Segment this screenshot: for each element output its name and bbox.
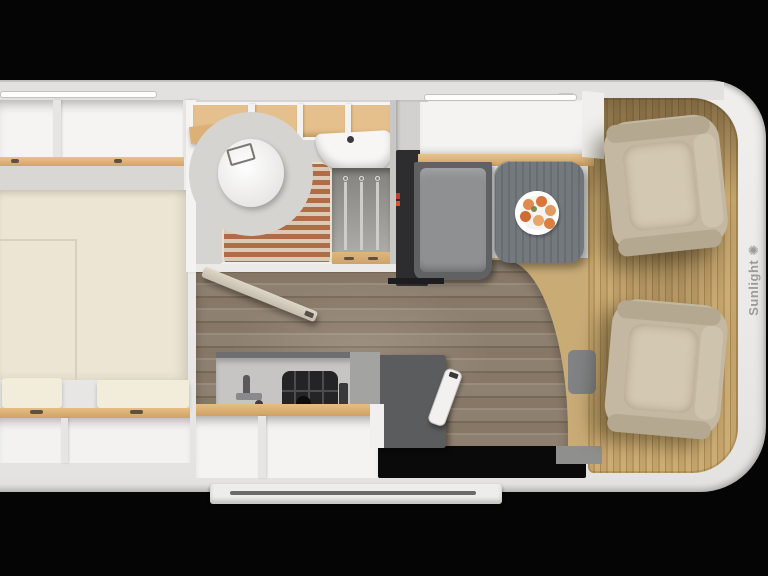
- led-light-strip: [424, 94, 577, 101]
- cab-seat-passenger: [594, 291, 738, 450]
- clothes-hanger: [376, 182, 379, 250]
- fridge-latch-accent: [396, 201, 400, 206]
- hanger-hook: [343, 176, 348, 181]
- floorplan-scene: Sunlight ✺: [0, 0, 768, 576]
- wardrobe-handle: [344, 257, 354, 260]
- locker-divider: [61, 418, 68, 463]
- rear-bed-mattress: [0, 190, 188, 380]
- fruit-leaf: [531, 206, 537, 212]
- locker-handle: [11, 159, 19, 163]
- mattress-seam-horizontal: [0, 239, 76, 241]
- bed-head-shelf: [0, 166, 184, 190]
- locker-handle: [30, 410, 43, 414]
- fruit: [545, 205, 556, 216]
- seat-pedestal: [568, 350, 596, 394]
- overhead-lockers-bottom: [0, 418, 190, 463]
- clothes-hanger: [360, 182, 363, 250]
- side-seat-latch: [449, 371, 459, 379]
- wardrobe-handle: [368, 257, 378, 260]
- entry-side-wall: [370, 404, 384, 448]
- dinette-bench-cushion: [420, 168, 486, 272]
- brand-label: Sunlight ✺: [745, 210, 763, 350]
- entry-threshold: [556, 446, 602, 464]
- hanger-hook: [359, 176, 364, 181]
- hanger-hook: [375, 176, 380, 181]
- locker-divider: [53, 100, 61, 158]
- bed-shelf-sill-bottom: [0, 408, 190, 418]
- locker-handle: [130, 410, 143, 414]
- fruit: [536, 196, 547, 207]
- cab-seat-driver: [593, 106, 740, 267]
- fridge-latch-accent: [396, 193, 400, 199]
- fruit: [544, 218, 555, 229]
- entry-door-opening: [378, 446, 586, 478]
- kitchen-counter-end: [350, 352, 380, 412]
- kitchen-sink-base: [236, 393, 262, 400]
- door-handle: [304, 310, 314, 318]
- sunlight-logo-icon: ✺: [746, 244, 761, 255]
- bathroom-bottom-wall: [196, 264, 397, 272]
- seat-cushion: [622, 139, 701, 232]
- locker-divider: [258, 416, 266, 478]
- entry-step-slot: [230, 491, 476, 495]
- overhead-lockers-top: [0, 100, 188, 158]
- led-light-strip: [0, 91, 157, 98]
- fruit: [520, 211, 531, 222]
- locker-handle: [114, 159, 122, 163]
- bed-backrest-cushion: [2, 378, 62, 408]
- bed-shelf-sill-top: [0, 157, 184, 166]
- kitchen-lockers-sill: [196, 404, 378, 416]
- seat-cushion: [622, 323, 699, 415]
- dinette-overhead-cabinet: [420, 102, 588, 156]
- basin-faucet: [347, 136, 354, 143]
- clothes-hanger: [344, 182, 347, 250]
- bench-base-shadow: [388, 278, 444, 284]
- bed-backrest-cushion: [97, 380, 189, 408]
- kitchen-side-lockers: [196, 416, 378, 478]
- brand-name: Sunlight: [746, 260, 761, 316]
- fruit: [533, 215, 544, 226]
- mattress-seam-vertical: [75, 239, 77, 380]
